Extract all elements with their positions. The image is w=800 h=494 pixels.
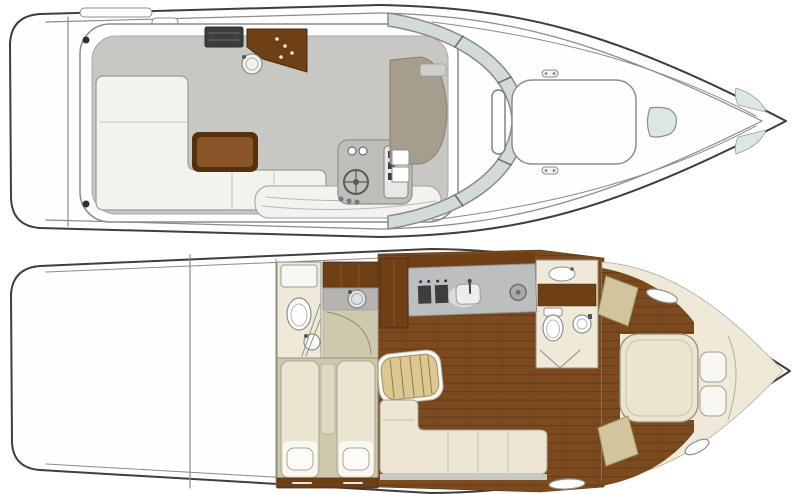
galley [407,252,537,316]
toilet-cistern [281,265,317,287]
guest-cabin [277,358,378,488]
bow-cleat-icon [542,70,558,77]
faucet-icon [304,334,308,338]
vanity [323,288,378,310]
island-berth [620,334,698,422]
galley-sink [456,284,481,305]
faucet-icon [570,267,574,271]
throttle-knob [339,197,344,202]
counter-dot [290,51,294,55]
bow-cleat-icon [542,167,558,174]
deck-plan-svg [0,0,800,494]
companionway-step [392,167,409,182]
toilet [543,315,563,341]
cabin-entry-floor [323,310,378,358]
pillow [343,448,369,470]
table-top [197,137,253,167]
gauge-icon [359,147,367,155]
counter-dot [275,37,279,41]
stern-cleat-icon [83,37,90,44]
settee-base-strip [380,474,547,480]
faucet-icon [242,55,246,59]
yacht-deck-plan-image [0,0,800,494]
stove-icon [418,285,432,303]
forward-head [536,260,598,368]
stern-rail [80,8,152,17]
gauge-icon [348,147,356,155]
pillow [287,448,313,470]
throttle-knob [347,199,352,204]
companionway-steps [376,349,445,405]
stern-cleat-icon [83,201,90,208]
pillow [700,352,726,382]
center-step [321,364,335,434]
foredeck-hatch [648,107,677,137]
companionway-step [392,150,409,165]
pillow [700,386,726,416]
bow-sunpad [512,80,636,164]
faucet-icon [348,290,352,294]
wet-bar-grill [205,27,243,47]
grab-rail [492,90,505,154]
cockpit-table [192,132,258,172]
companionway-hatch [420,64,446,76]
steering-wheel-icon [344,170,368,194]
lower-deck-plan [11,249,790,493]
throttle-knob [355,200,360,205]
wardrobe [323,262,378,288]
aft-head [277,262,321,358]
faucet-icon [588,314,592,319]
main-deck-plan [10,5,786,237]
counter-dot [283,44,287,48]
counter-dot [279,55,283,59]
vanity-counter [538,284,596,306]
stove-icon [435,285,449,303]
